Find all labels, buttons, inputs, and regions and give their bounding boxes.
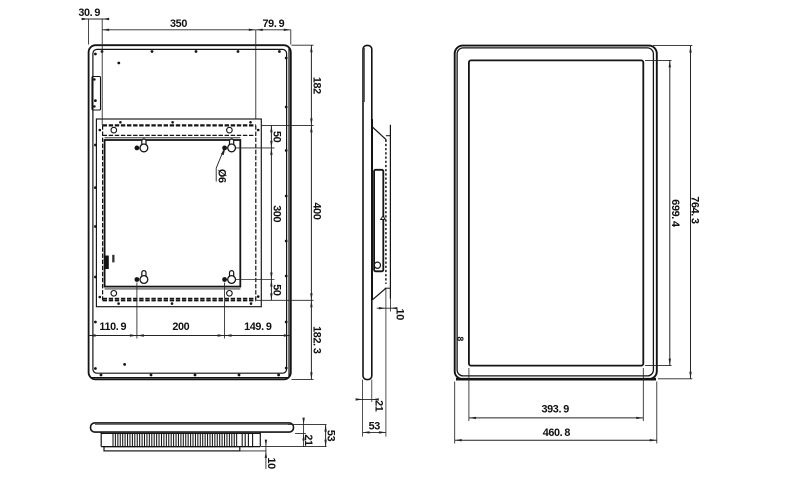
svg-text:30.9: 30.9 xyxy=(78,7,100,19)
svg-text:182: 182 xyxy=(311,77,323,94)
svg-text:10: 10 xyxy=(394,309,406,321)
svg-text:200: 200 xyxy=(172,321,189,333)
svg-text:Ø6: Ø6 xyxy=(216,169,228,183)
svg-text:110.9: 110.9 xyxy=(99,321,126,333)
svg-text:149.9: 149.9 xyxy=(244,321,272,333)
svg-text:182.3: 182.3 xyxy=(311,326,323,354)
svg-text:400: 400 xyxy=(311,203,323,220)
svg-text:53: 53 xyxy=(325,430,337,442)
svg-text:8: 8 xyxy=(455,337,465,342)
svg-text:393.9: 393.9 xyxy=(542,404,570,416)
svg-text:50: 50 xyxy=(271,131,283,143)
svg-text:10: 10 xyxy=(265,458,277,470)
svg-text:350: 350 xyxy=(170,18,187,30)
svg-text:21: 21 xyxy=(302,434,314,446)
svg-text:764.3: 764.3 xyxy=(689,196,701,224)
svg-text:300: 300 xyxy=(271,205,283,222)
svg-text:699.4: 699.4 xyxy=(669,199,681,227)
svg-text:50: 50 xyxy=(271,284,283,296)
svg-text:53: 53 xyxy=(369,421,381,433)
svg-text:21: 21 xyxy=(373,400,385,412)
svg-text:460.8: 460.8 xyxy=(543,427,571,439)
svg-text:79.9: 79.9 xyxy=(263,18,285,30)
